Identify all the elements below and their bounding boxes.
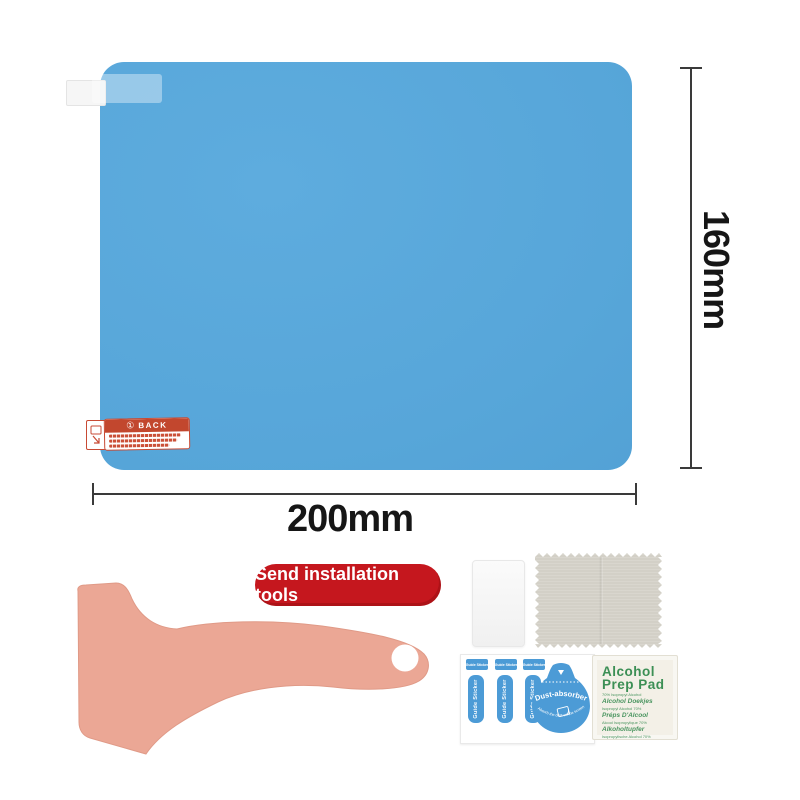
guide-sticker-strip: Guide Sticker <box>497 675 513 723</box>
guide-sticker-strip: Guide Sticker <box>468 675 484 723</box>
alcohol-pad-line: Isopropylische Alcohol 70% <box>602 734 677 739</box>
height-dimension-label: 160mm <box>698 210 734 326</box>
back-sticker-fine-print <box>105 431 189 447</box>
alcohol-pad-line: Préps D'Alcool <box>602 712 677 719</box>
squeegee-hang-hole <box>392 645 419 672</box>
product-image: ① BACK 160mm 200mm Send installation too… <box>0 0 800 800</box>
width-dimension-cap-left <box>92 483 94 505</box>
height-dimension-line <box>690 68 692 468</box>
width-dimension-label: 200mm <box>225 499 475 539</box>
back-sticker-number: ① <box>126 421 134 430</box>
dust-absorber-sticker: Dust-absorber Absorb the dust on the scr… <box>529 661 593 735</box>
alcohol-pad-line: 70% Isopropyl Alcohol <box>602 692 677 697</box>
alcohol-pad-line: Alkoholtupfer <box>602 726 677 733</box>
alcohol-pad-line: Isopropyl Alcohol 70% <box>602 706 677 711</box>
squeegee-tool <box>60 578 440 763</box>
sticker-sheet: Guide Sticker Guide Sticker Guide Sticke… <box>460 654 595 744</box>
back-sticker: ① BACK <box>104 417 191 450</box>
guide-sticker-tab: Guide Sticker <box>466 659 488 670</box>
height-dimension-cap-bottom <box>680 467 702 469</box>
guide-sticker-tab: Guide Sticker <box>495 659 517 670</box>
film-card <box>472 560 525 647</box>
peel-icon <box>90 425 102 445</box>
alcohol-pad-line: Alcool Isopropylique 70% <box>602 720 677 725</box>
height-dimension-cap-top <box>680 67 702 69</box>
width-dimension-line <box>92 493 637 495</box>
alcohol-pad-title-line2: Prep Pad <box>602 678 677 691</box>
alcohol-prep-pad: Alcohol Prep Pad 70% Isopropyl Alcohol A… <box>592 655 678 740</box>
cloth-fold-crease <box>599 557 603 644</box>
alcohol-pad-line: Alcohol Doekjes <box>602 698 677 705</box>
protective-film <box>100 62 632 470</box>
back-sticker-label: BACK <box>138 421 167 430</box>
peel-tab-inner <box>92 74 162 103</box>
width-dimension-cap-right <box>635 483 637 505</box>
cleaning-cloth <box>535 553 662 648</box>
